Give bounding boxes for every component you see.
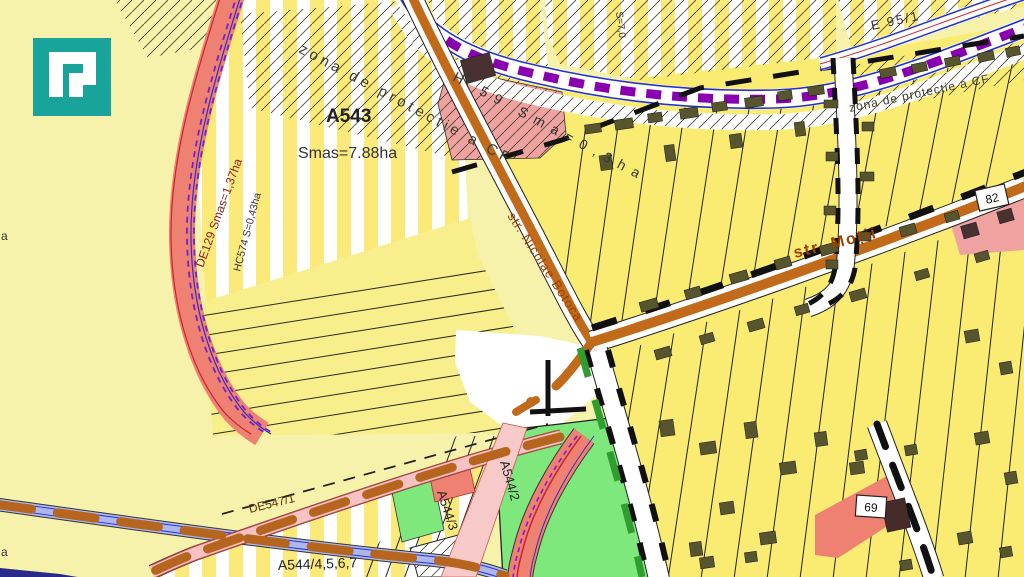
building (999, 546, 1013, 558)
building (974, 431, 990, 445)
building (659, 419, 675, 437)
building (999, 361, 1013, 375)
building (807, 85, 824, 96)
building (899, 559, 913, 571)
building (814, 431, 828, 447)
map-label: 69 (864, 500, 879, 515)
building (614, 118, 633, 130)
map-label: Smas=7.88ha (298, 145, 397, 162)
building (849, 461, 865, 475)
building (689, 541, 703, 557)
building (826, 260, 838, 269)
building (824, 100, 838, 108)
building (711, 101, 727, 112)
building (1004, 471, 1018, 485)
building (664, 144, 676, 161)
building (679, 107, 698, 119)
map-label: A543 (326, 106, 371, 127)
building (957, 531, 973, 545)
map-label: a (1, 229, 8, 243)
building (584, 123, 601, 134)
building (854, 449, 868, 461)
building (744, 96, 763, 108)
zoning-map-canvas[interactable]: zona de protectie a CFzona de protectie … (0, 0, 1024, 577)
parcel-number-box: 69 (855, 495, 886, 518)
building (744, 421, 758, 439)
building (964, 329, 980, 343)
building (777, 90, 792, 101)
building (824, 206, 836, 215)
building (904, 444, 918, 456)
building (729, 133, 743, 149)
building (779, 461, 797, 475)
map-label: a (1, 545, 8, 559)
building (759, 531, 777, 545)
building (699, 441, 717, 455)
building (647, 112, 662, 123)
building (862, 122, 874, 131)
building (719, 501, 735, 515)
map-viewport: zona de protectie a CFzona de protectie … (0, 0, 1024, 577)
building (744, 551, 757, 563)
building (860, 172, 874, 181)
app-logo (33, 38, 111, 116)
building (794, 121, 806, 136)
building (826, 152, 838, 161)
building (699, 556, 714, 569)
map-label: A544/4,5,6,7 (278, 554, 358, 573)
